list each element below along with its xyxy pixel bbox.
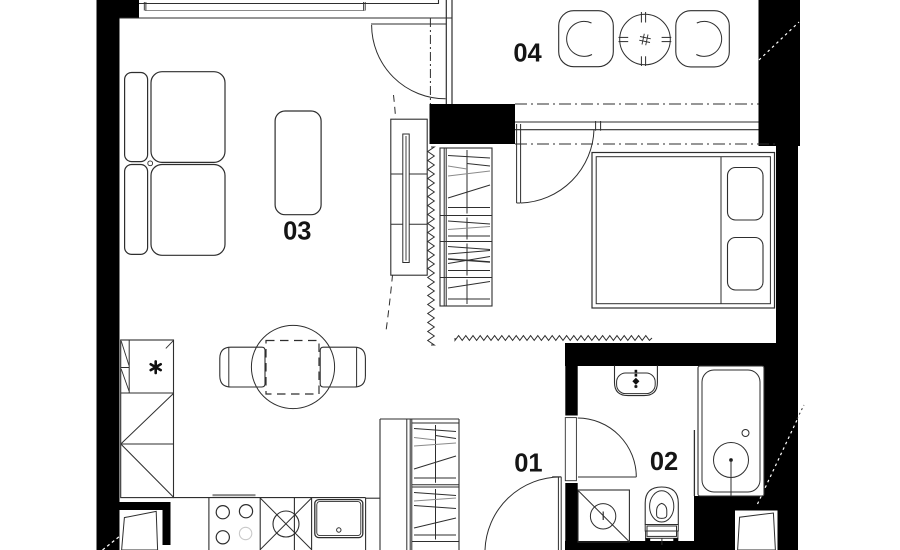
svg-text:04: 04 [513,39,542,67]
svg-text:03: 03 [283,217,311,245]
svg-text:01: 01 [514,449,542,477]
svg-text:02: 02 [650,448,678,476]
